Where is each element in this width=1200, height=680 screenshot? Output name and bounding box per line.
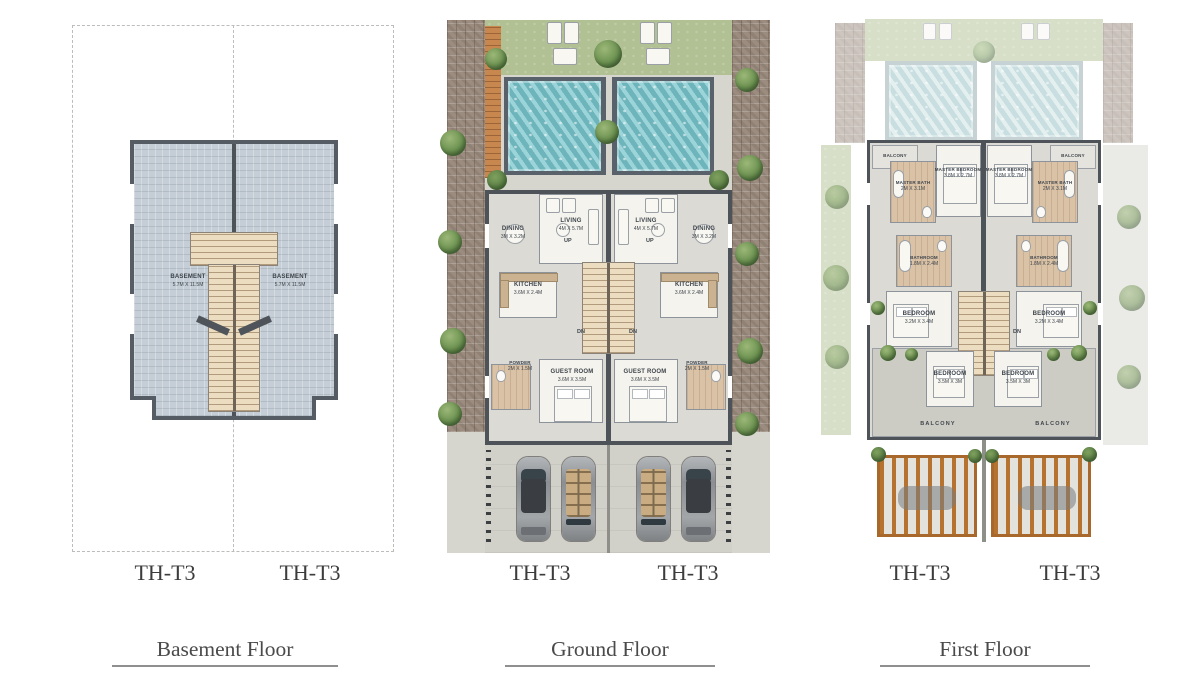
toilet [1036, 206, 1046, 218]
room-name: BASEMENT [260, 274, 320, 282]
tree-icon [905, 348, 918, 361]
room-dim: 3.6M X 3.5M [542, 377, 602, 383]
room-label-guest-right: GUEST ROOM 3.6M X 3.5M [615, 369, 675, 383]
room-name: KITCHEN [664, 282, 714, 290]
pillow [632, 389, 648, 399]
tree-icon [871, 301, 885, 315]
bush-icon [968, 449, 982, 463]
basement-notch-left [130, 396, 156, 420]
room-label-kitchen-right: KITCHEN 3.6M X 2.4M [664, 282, 714, 296]
room-name: MASTER BEDROOM [979, 167, 1039, 173]
unit-label-basement-right: TH-T3 [270, 560, 350, 586]
lounge-chair [547, 22, 562, 44]
tree-icon [438, 402, 462, 426]
faded-lounge-chair [1037, 23, 1050, 40]
room-label-bedroom-upper-left: BEDROOM 3.2M X 3.4M [889, 311, 949, 325]
room-label-bedroom-lower-right: BEDROOM 3.5M X 3M [988, 371, 1048, 385]
windshield [566, 519, 591, 525]
lounge-chair [640, 22, 655, 44]
room-label-kitchen-left: KITCHEN 3.6M X 2.4M [503, 282, 553, 296]
room-name: BEDROOM [889, 311, 949, 319]
pergola-right [991, 455, 1091, 537]
tree-icon [440, 130, 466, 156]
room-name: LIVING [616, 218, 676, 226]
faded-lower-floor-context [835, 15, 1133, 143]
room-name: BASEMENT [158, 274, 218, 282]
room-dim: 1.8M X 2.4M [894, 261, 954, 267]
ground-staircase [582, 262, 635, 354]
car-icon [682, 457, 715, 541]
faded-lounge-chair [923, 23, 936, 40]
room-label-dining-left: DINING 3M X 3.2M [488, 226, 538, 240]
window [485, 376, 489, 398]
bed [629, 386, 667, 422]
windshield [641, 519, 666, 525]
room-dim: 1.8M X 2.4M [1014, 261, 1074, 267]
tree-icon [1083, 301, 1097, 315]
room-dim: 2M X 3.1M [1025, 186, 1085, 192]
room-name: BEDROOM [920, 371, 980, 379]
room-name: DINING [488, 226, 538, 234]
faded-tree-icon [1117, 205, 1141, 229]
tree-icon [735, 242, 759, 266]
basement-window [130, 184, 134, 224]
window [728, 376, 732, 398]
hedge-icon [709, 170, 729, 190]
faded-tree-icon [823, 265, 849, 291]
armchair [562, 198, 576, 213]
room-label-guest-left: GUEST ROOM 3.6M X 3.5M [542, 369, 602, 383]
tree-icon [438, 230, 462, 254]
room-name: BEDROOM [988, 371, 1048, 379]
room-dim: 3.2M X 3.4M [1019, 319, 1079, 325]
toilet [937, 240, 947, 252]
room-dim: 2M X 3.1M [883, 186, 943, 192]
unit-label-ground-left: TH-T3 [500, 560, 580, 586]
car-tail [686, 527, 711, 535]
room-dim: 3M X 3.2M [679, 234, 729, 240]
stair-rail [233, 265, 236, 411]
faded-lounge-chair [1021, 23, 1034, 40]
faded-path-left [835, 23, 865, 143]
armchair [645, 198, 659, 213]
window [1098, 183, 1101, 205]
room-dim: 2M X 1.5M [495, 366, 545, 372]
room-name: DINING [679, 226, 729, 234]
tree-icon [440, 328, 466, 354]
basement-stair-landing [190, 232, 278, 266]
pillow [649, 389, 665, 399]
room-label-balcony-top-right: BALCONY [1050, 153, 1096, 159]
room-dim: 3.2M X 3.4M [889, 319, 949, 325]
convertible-car-icon [637, 457, 670, 541]
car-icon [517, 457, 550, 541]
room-dim: 3M X 3.2M [488, 234, 538, 240]
unit-label-ground-right: TH-T3 [648, 560, 728, 586]
tree-icon [735, 412, 759, 436]
stair-label-up-right: UP [646, 238, 654, 244]
faded-tree-icon [973, 41, 995, 63]
faded-pool-right [991, 61, 1083, 141]
room-dim: 4M X 5.7M [541, 226, 601, 232]
basement-plan: BASEMENT 5.7M X 11.5M BASEMENT 5.7M X 11… [72, 25, 394, 552]
room-name: GUEST ROOM [542, 369, 602, 377]
tree-icon [485, 48, 507, 70]
stair-rail [607, 263, 610, 353]
unit-label-first-right: TH-T3 [1030, 560, 1110, 586]
stair-label-dn-left: DN [577, 329, 585, 335]
faded-tree-icon [1119, 285, 1145, 311]
title-ground-floor: Ground Floor [505, 637, 715, 667]
pool-right [613, 77, 714, 175]
hedge-icon [487, 170, 507, 190]
faded-path-right [1103, 23, 1133, 143]
room-name: GUEST ROOM [615, 369, 675, 377]
room-dim: 3.6M X 2.4M [664, 290, 714, 296]
pergola-left [877, 455, 977, 537]
faded-lounge-chair [939, 23, 952, 40]
stair-rail [983, 292, 986, 375]
room-name: LIVING [541, 218, 601, 226]
room-label-powder-left: POWDER 2M X 1.5M [495, 360, 545, 372]
car-roof [521, 479, 546, 513]
bed [554, 386, 592, 422]
pillow [574, 389, 590, 399]
faded-tree-icon [825, 345, 849, 369]
room-label-master-bath-right: MASTER BATH 2M X 3.1M [1025, 180, 1085, 192]
tree-icon [1071, 345, 1087, 361]
lounge-chair [657, 22, 672, 44]
armchair [661, 198, 675, 213]
convertible-car-icon [562, 457, 595, 541]
room-name: BEDROOM [1019, 311, 1079, 319]
room-dim: 2M X 1.5M [672, 366, 722, 372]
room-label-dining-right: DINING 3M X 3.2M [679, 226, 729, 240]
first-floor-plan: BALCONY BALCONY MASTER BEDROOM 3.8M X 2.… [835, 15, 1133, 555]
toilet [922, 206, 932, 218]
title-first-floor: First Floor [880, 637, 1090, 667]
room-label-bedroom-lower-left: BEDROOM 3.5M X 3M [920, 371, 980, 385]
room-label-basement-left: BASEMENT 5.7M X 11.5M [158, 274, 218, 288]
room-label-bathroom-left: BATHROOM 1.8M X 2.4M [894, 255, 954, 267]
bush-icon [985, 449, 999, 463]
room-label-living-left: LIVING 4M X 5.7M [541, 218, 601, 232]
stair-label-up-left: UP [564, 238, 572, 244]
room-dim: 5.7M X 11.5M [260, 282, 320, 288]
tree-icon [737, 338, 763, 364]
room-label-master-bedroom-right: MASTER BEDROOM 3.8M X 2.7M [979, 167, 1039, 179]
window [867, 183, 870, 205]
room-label-balcony-left: BALCONY [908, 421, 968, 428]
tree-icon [594, 40, 622, 68]
window [1098, 303, 1101, 325]
room-label-powder-right: POWDER 2M X 1.5M [672, 360, 722, 372]
faded-tree-icon [1117, 365, 1141, 389]
room-dim: 3.5M X 3M [988, 379, 1048, 385]
basement-notch-right [312, 396, 338, 420]
pergola-shadow-car [898, 486, 956, 510]
ground-path-left [447, 20, 485, 432]
room-dim: 4M X 5.7M [616, 226, 676, 232]
unit-label-basement-left: TH-T3 [125, 560, 205, 586]
garden-table [553, 48, 577, 65]
garage-wall-hatch-left [486, 450, 491, 542]
toilet [1021, 240, 1031, 252]
stair-label-dn-right: DN [629, 329, 637, 335]
title-basement-floor: Basement Floor [112, 637, 338, 667]
unit-label-first-left: TH-T3 [880, 560, 960, 586]
room-dim: 3.5M X 3M [920, 379, 980, 385]
bush-icon [1082, 447, 1097, 462]
car-roof [686, 479, 711, 513]
pergola-shadow-car [1018, 486, 1076, 510]
stair-label-dn: DN [1013, 329, 1021, 335]
pool-left [504, 77, 605, 175]
room-dim: 5.7M X 11.5M [158, 282, 218, 288]
window [867, 303, 870, 325]
car-tail [521, 527, 546, 535]
room-dim: 3.6M X 3.5M [615, 377, 675, 383]
lounge-chair [564, 22, 579, 44]
tree-icon [880, 345, 896, 361]
room-label-bathroom-right: BATHROOM 1.8M X 2.4M [1014, 255, 1074, 267]
faded-tree-icon [825, 185, 849, 209]
tree-icon [735, 68, 759, 92]
floorplan-sheet: BASEMENT 5.7M X 11.5M BASEMENT 5.7M X 11… [0, 0, 1200, 680]
basement-window [130, 294, 134, 334]
room-label-master-bath-left: MASTER BATH 2M X 3.1M [883, 180, 943, 192]
tree-icon [595, 120, 619, 144]
faded-pool-left [885, 61, 977, 141]
bush-icon [871, 447, 886, 462]
driveway-divider-wall [607, 445, 610, 553]
room-dim: 3.8M X 2.7M [979, 173, 1039, 179]
garage-wall-hatch-right [726, 450, 731, 542]
room-name: KITCHEN [503, 282, 553, 290]
room-label-balcony-right: BALCONY [1023, 421, 1083, 428]
garden-table [646, 48, 670, 65]
tree-icon [1047, 348, 1060, 361]
room-label-bedroom-upper-right: BEDROOM 3.2M X 3.4M [1019, 311, 1079, 325]
basement-window [334, 184, 338, 224]
car-cabin [641, 469, 666, 517]
room-dim: 3.6M X 2.4M [503, 290, 553, 296]
tree-icon [737, 155, 763, 181]
ground-plan: LIVING 4M X 5.7M LIVING 4M X 5.7M DINING… [447, 20, 770, 553]
room-label-balcony-top-left: BALCONY [872, 153, 918, 159]
room-label-living-right: LIVING 4M X 5.7M [616, 218, 676, 232]
room-label-basement-right: BASEMENT 5.7M X 11.5M [260, 274, 320, 288]
car-cabin [566, 469, 591, 517]
pillow [557, 389, 573, 399]
armchair [546, 198, 560, 213]
basement-window [334, 294, 338, 334]
